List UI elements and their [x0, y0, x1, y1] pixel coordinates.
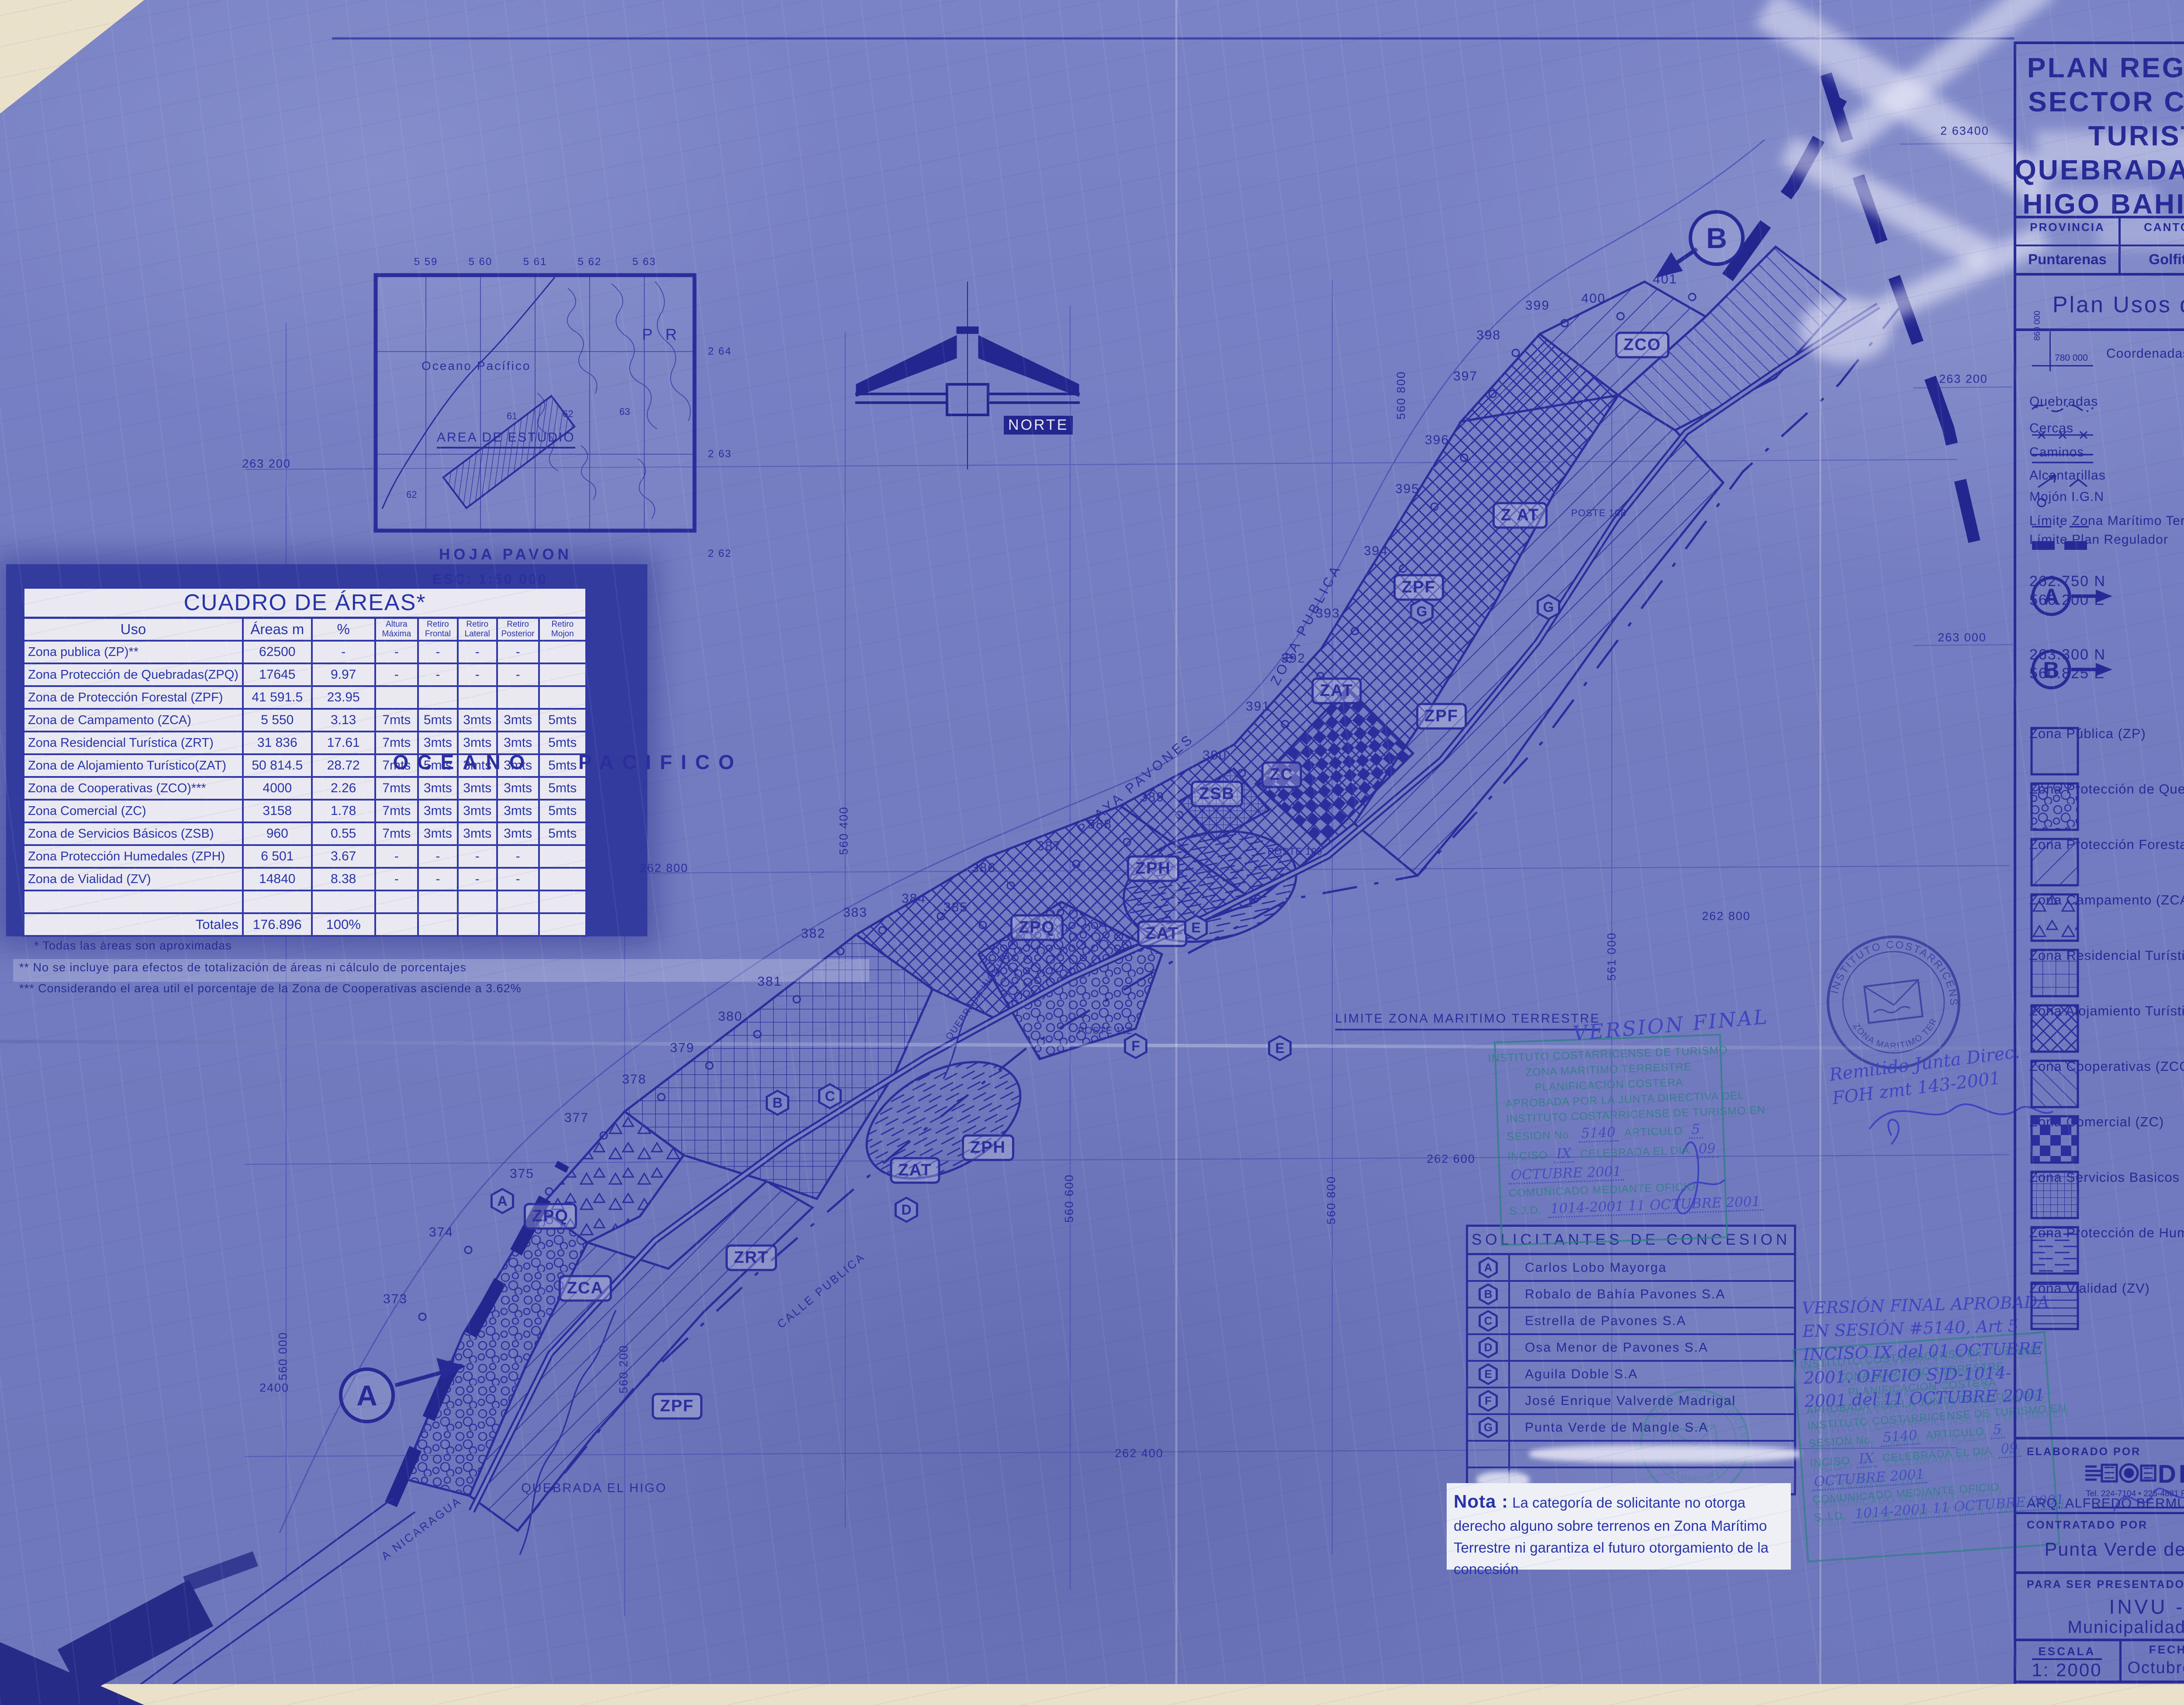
map-label-zat: ZAT: [1311, 678, 1362, 704]
admin-value: Puntarenas: [2016, 251, 2119, 268]
legend-zone-row: Zona Cooperativas (ZCO): [2029, 1059, 2184, 1074]
legend-symbol-row: Cercas: [2029, 421, 2184, 436]
legend-zone-row: Zona Residencial Turística (ZRT): [2029, 948, 2184, 963]
areas-uso: Zona de Cooperativas (ZCO)***: [24, 777, 243, 800]
approval-stamp: INSTITUTO COSTARRICENSE DE TURISMOZONA M…: [1494, 1034, 1728, 1246]
areas-cell: [497, 686, 539, 709]
stamp-segment: IX: [1856, 1450, 1877, 1468]
solicitante-name: Osa Menor de Pavones S.A: [1510, 1335, 1794, 1360]
mojon-label: 384: [902, 891, 926, 906]
solicitante-letter: D: [1479, 1337, 1498, 1359]
solicitante-letter: B: [1479, 1284, 1498, 1305]
map-label-zpq: ZPQ: [524, 1203, 577, 1230]
areas-cell: 5mts: [539, 709, 586, 732]
areas-cell: -: [497, 868, 539, 890]
map-label-263-200: 263 200: [242, 457, 291, 471]
areas-totals-label: Totales: [24, 913, 243, 936]
sheet-title-line: SECTOR COSTERO: [2015, 86, 2184, 118]
areas-cell: -: [418, 845, 458, 868]
inset-pr-label: P R: [642, 325, 681, 344]
mojon-label: 389: [1140, 790, 1165, 805]
stamp-segment: SESION No.: [1507, 1129, 1572, 1143]
zone-swatch-zco: [2029, 1059, 2080, 1109]
areas-cell: 14840: [243, 868, 312, 890]
stamp-segment: 09: [1997, 1440, 2021, 1458]
inset-tick: 5 63: [632, 256, 657, 268]
zone-swatch-zca: [2029, 892, 2080, 943]
stamp-segment: OCTUBRE 2001: [1508, 1163, 1624, 1184]
mojon-label: 380: [718, 1009, 743, 1024]
stamp-segment: INCISO: [1507, 1149, 1548, 1163]
stamp-segment: 5140: [1578, 1124, 1618, 1142]
stamp-segment: CELEBRADA EL DIA: [1580, 1144, 1690, 1161]
areas-cell: [539, 868, 586, 890]
areas-cell: -: [458, 868, 497, 890]
areas-uso: Zona de Servicios Básicos (ZSB): [24, 822, 243, 845]
solicitante-name: Punta Verde de Mangle S.A: [1510, 1415, 1794, 1440]
map-label-zsb: ZSB: [1191, 781, 1243, 808]
architect-name: ARQ. ALFREDO BERMUDEZ: [2027, 1495, 2184, 1511]
map-label-560-600: 560 600: [1063, 1174, 1076, 1223]
mojon-label: 386: [971, 861, 996, 876]
lambert-icon: 860 000 780 000: [2029, 328, 2095, 380]
solicitante-letter-inner: C: [1481, 1312, 1496, 1330]
mojon-label: 383: [843, 905, 867, 920]
legend-zone-row: Zona Comercial (ZC): [2029, 1114, 2164, 1130]
stamp-segment: 5: [1689, 1122, 1703, 1139]
areas-cell: 3mts: [458, 777, 497, 800]
presentado-muni: Municipalidad de Golfito: [2015, 1618, 2184, 1637]
areas-uso: Zona Residencial Turística (ZRT): [24, 732, 243, 754]
mojon-circle: [546, 1188, 553, 1195]
zone-swatch-zpq: [2029, 781, 2080, 832]
areas-cell: 4000: [243, 777, 312, 800]
nota-label: Nota :: [1454, 1491, 1508, 1512]
areas-cell: 7mts: [375, 800, 418, 822]
legend-symbol-row: Quebradas: [2029, 394, 2184, 410]
legend-zone-row: Zona Pública (ZP): [2029, 726, 2146, 742]
map-label-zpq: ZPQ: [1010, 915, 1064, 941]
solicitante-row: [1468, 1442, 1794, 1468]
stamp-segment: ZONA MARITIMO TERRESTRE: [1525, 1060, 1692, 1079]
map-label-z-at: Z AT: [1493, 502, 1548, 529]
map-label-zat: ZAT: [1137, 921, 1187, 947]
caminos-icon: [2029, 445, 2095, 471]
parcel-letter-inner: G: [1412, 601, 1431, 622]
inset-study-label: AREA DE ESTUDIO: [437, 430, 575, 449]
areas-cell: 9.97: [312, 663, 375, 686]
mojon-label: 377: [564, 1111, 589, 1125]
areas-cell: 41 591.5: [243, 686, 312, 709]
mojon-label: 396: [1425, 433, 1449, 448]
areas-header: RetiroMojon: [539, 618, 586, 641]
stamp-segment: CELEBRADA EL DIA: [1882, 1445, 1993, 1465]
map-label-zca: ZCA: [559, 1275, 612, 1302]
solicitante-letter-cell: B: [1468, 1282, 1510, 1307]
legend-zone-row: Zona Vialidad (ZV): [2029, 1280, 2150, 1296]
mojon-label: 401: [1653, 272, 1677, 287]
areas-header: RetiroPosterior: [497, 618, 539, 641]
north-label: NORTE: [1004, 416, 1073, 435]
solicitante-letter-cell: F: [1468, 1388, 1510, 1413]
areas-cell: [539, 845, 586, 868]
parcel-letter-inner: F: [1126, 1035, 1145, 1057]
elaborado-label: ELABORADO POR: [2027, 1446, 2141, 1458]
areas-uso: Zona de Protección Forestal (ZPF): [24, 686, 243, 709]
contratado-label: CONTRATADO POR: [2027, 1519, 2148, 1532]
solicitante-letter: E: [1479, 1363, 1498, 1385]
map-label-zph: ZPH: [962, 1135, 1014, 1161]
map-label-zrt: ZRT: [726, 1245, 777, 1271]
areas-cell: 1.78: [312, 800, 375, 822]
firm-name: DEPPAT: [2158, 1460, 2184, 1489]
solicitante-row: FJosé Enrique Valverde Madrigal: [1468, 1388, 1794, 1415]
solicitante-letter-inner: G: [1481, 1419, 1496, 1436]
legend-zone-row: Zona Protección de Humedales (ZPH): [2029, 1225, 2184, 1241]
inset-tick: 2 64: [708, 345, 732, 358]
areas-cell: -: [418, 641, 458, 663]
mojon-circle: [419, 1313, 426, 1320]
parcel-letter-inner: C: [820, 1085, 840, 1107]
legend-zone-row: Zona Protección Forestal (ZPF): [2029, 837, 2184, 852]
map-label-263-000: 263 000: [1938, 631, 1987, 645]
areas-header: RetiroFrontal: [418, 618, 458, 641]
mojon-label: 390: [1203, 748, 1227, 763]
solicitante-letter-cell: G: [1468, 1415, 1510, 1440]
areas-uso: Zona Protección de Quebradas(ZPQ): [24, 663, 243, 686]
mojon-label: 400: [1581, 291, 1606, 306]
areas-cell: 3mts: [497, 709, 539, 732]
svg-text:A: A: [2043, 584, 2060, 610]
areas-cell: 7mts: [375, 709, 418, 732]
map-label-zc: ZC: [1261, 762, 1302, 788]
escala-value: 1: 2000: [2015, 1660, 2119, 1681]
inset-tick: 5 60: [469, 256, 493, 268]
solicitante-row: GPunta Verde de Mangle S.A: [1468, 1415, 1794, 1442]
escala-label: ESCALA: [2032, 1645, 2102, 1660]
areas-cell: -: [418, 663, 458, 686]
areas-uso: Zona Comercial (ZC): [24, 800, 243, 822]
areas-total-pct: 100%: [312, 913, 375, 936]
solicitante-row: DOsa Menor de Pavones S.A: [1468, 1335, 1794, 1362]
areas-cell: -: [375, 663, 418, 686]
solicitante-letter-inner: D: [1481, 1339, 1496, 1356]
inset-num: 61: [507, 411, 517, 422]
map-label-poste-112: POSTE 112: [1078, 1025, 1133, 1036]
areas-cell: 3mts: [497, 777, 539, 800]
areas-uso: Zona de Vialidad (ZV): [24, 868, 243, 890]
map-label-zco: ZCO: [1615, 332, 1669, 359]
areas-cell: -: [458, 641, 497, 663]
areas-cell: -: [497, 641, 539, 663]
areas-cell: [458, 686, 497, 709]
areas-uso: Zona de Campamento (ZCA): [24, 709, 243, 732]
sheet-title-line: PLAN REGULADOR: [2015, 52, 2184, 84]
lambert-v: 860 000: [2033, 311, 2042, 341]
areas-cell: 5 550: [243, 709, 312, 732]
solicitante-letter-inner: E: [1481, 1366, 1496, 1383]
stamp-segment: 5140: [1880, 1427, 1920, 1447]
solicitante-letter-inner: A: [1481, 1259, 1496, 1277]
areas-cell: -: [497, 845, 539, 868]
areas-cell: 17645: [243, 663, 312, 686]
areas-cell: 3mts: [418, 777, 458, 800]
areas-cell: [418, 686, 458, 709]
north-arrow: [855, 282, 1080, 469]
map-label-zph: ZPH: [1127, 856, 1179, 882]
parcel-letter-inner: B: [768, 1092, 787, 1114]
areas-header: RetiroLateral: [458, 618, 497, 641]
areas-cell: 5mts: [539, 822, 586, 845]
map-label-zpf: ZPF: [652, 1393, 702, 1420]
areas-cell: [375, 686, 418, 709]
mojon-label: 399: [1525, 298, 1550, 313]
solicitante-name: Estrella de Pavones S.A: [1510, 1308, 1794, 1333]
zone-swatch-zc: [2029, 1114, 2080, 1165]
areas-uso: Zona de Alojamiento Turístico(ZAT): [24, 754, 243, 777]
areas-cell: 3mts: [497, 822, 539, 845]
map-label-2-63400: 2 63400: [1940, 124, 1989, 138]
legend-symbol-label: Coordenadas Lambert: [2106, 346, 2184, 362]
areas-cell: 3mts: [418, 800, 458, 822]
solicitante-row: ACarlos Lobo Mayorga: [1468, 1255, 1794, 1282]
stamp-segment: 09: [1696, 1140, 1719, 1158]
lpr-icon: [2029, 532, 2095, 559]
solicitante-row: BRobalo de Bahía Pavones S.A: [1468, 1282, 1794, 1308]
areas-cell: [539, 641, 586, 663]
inset-tick: 5 61: [523, 256, 547, 268]
mojon-label: 387: [1037, 839, 1061, 854]
solicitante-name: José Enrique Valverde Madrigal: [1510, 1388, 1794, 1413]
map-label-262-800: 262 800: [1702, 910, 1751, 923]
solicitante-letter: C: [1479, 1310, 1498, 1332]
parcel-letter-inner: G: [1539, 596, 1558, 618]
legend-symbol-row: Alcantarillas: [2029, 468, 2184, 483]
mojon-circle: [1689, 293, 1696, 300]
areas-cell: -: [375, 868, 418, 890]
areas-cell: [539, 663, 586, 686]
legend-symbol-row: Caminos: [2029, 445, 2184, 460]
areas-cell: -: [497, 663, 539, 686]
map-point-B: B: [1689, 210, 1745, 266]
areas-cell: 6 501: [243, 845, 312, 868]
mojon-label: 392: [1281, 651, 1306, 666]
solicitante-letter-cell: A: [1468, 1255, 1510, 1280]
solicitante-letter: F: [1479, 1390, 1498, 1412]
svg-text:B: B: [2043, 658, 2060, 683]
zone-swatch-zv: [2029, 1280, 2080, 1331]
areas-cell: 3mts: [458, 709, 497, 732]
solicitante-name: Aguila Doble S.A: [1510, 1362, 1794, 1387]
areas-cell: -: [312, 641, 375, 663]
map-label-quebrada-el-higo: QUEBRADA EL HIGO: [521, 1481, 667, 1496]
areas-uso: Zona publica (ZP)**: [24, 641, 243, 663]
parcel-letter-inner: E: [1270, 1037, 1289, 1059]
stamp-segment: ARTICULO: [1925, 1425, 1985, 1442]
mojon-label: 398: [1476, 328, 1501, 343]
presentado-label: PARA SER PRESENTADO A: [2027, 1578, 2184, 1591]
solicitante-row: EAguila Doble S.A: [1468, 1362, 1794, 1388]
stamp-segment: SESION No.: [1808, 1433, 1875, 1450]
mojon-label: 385: [943, 900, 968, 915]
point-B-icon: B: [2029, 645, 2117, 694]
map-label-2400: 2400: [259, 1381, 289, 1395]
areas-cell: 3.13: [312, 709, 375, 732]
stamp-segment: 5: [1990, 1421, 2005, 1439]
legend-symbol-row: Mojón I.G.N: [2029, 490, 2184, 505]
map-label-560-400: 560 400: [837, 806, 851, 855]
areas-cell: 5mts: [539, 800, 586, 822]
map-label-zpf: ZPF: [1393, 574, 1444, 601]
areas-cell: [539, 686, 586, 709]
presentado-invu: INVU - ICT: [2015, 1595, 2184, 1619]
map-label-zat: ZAT: [890, 1157, 940, 1184]
stamp-segment: S.J.D.: [1814, 1509, 1847, 1524]
stamp-segment: PLANIFICACION COSTERA: [1534, 1076, 1683, 1094]
areas-total-area: 176.896: [243, 913, 312, 936]
mojon-label: 373: [383, 1292, 408, 1307]
map-point-A: A: [339, 1367, 395, 1423]
mojon-circle: [465, 1246, 472, 1253]
mojon-label: 391: [1246, 699, 1270, 714]
parcel-letter-inner: D: [897, 1199, 916, 1221]
solicitante-letter-cell: [1468, 1442, 1510, 1467]
areas-cell: 50 814.5: [243, 754, 312, 777]
mojon-label: 374: [429, 1225, 453, 1240]
mojon-circle: [1512, 349, 1519, 356]
areas-cell: 8.38: [312, 868, 375, 890]
sheet-title-line: HIGO BAHIA PAVON: [2015, 188, 2184, 220]
areas-cell: 3mts: [458, 822, 497, 845]
deppat-logo: [2084, 1459, 2158, 1489]
areas-cell: 23.95: [312, 686, 375, 709]
map-label-263-200: 263 200: [1939, 373, 1988, 386]
inset-num: 63: [619, 406, 630, 418]
mojon-label: 375: [510, 1167, 534, 1181]
inset-map: [376, 275, 695, 531]
stamp-segment: ARTICULO: [1624, 1125, 1683, 1139]
fecha-label: FECHA: [2122, 1643, 2184, 1657]
solicitante-letter-inner: F: [1481, 1392, 1496, 1410]
areas-cell: 28.72: [312, 754, 375, 777]
mojon-label: 381: [757, 974, 782, 989]
legend-point-row: B 263.300 N560.825 E: [2029, 645, 2106, 683]
areas-title: CUADRO DE ÁREAS*: [24, 588, 586, 618]
mojon-label: 394: [1364, 544, 1388, 559]
legend-point-row: A 262.750 N560.200 E: [2029, 572, 2106, 609]
quebradas-icon: [2029, 394, 2095, 421]
blueprint-sheet: INSTITUTO COSTARRICENSE DE TURISMO ZONA …: [0, 0, 2184, 1705]
areas-cell: 3158: [243, 800, 312, 822]
stamp-segment: IX: [1554, 1146, 1575, 1163]
point-A-icon: A: [2029, 572, 2117, 620]
zone-swatch-zat: [2029, 1003, 2080, 1054]
mojon-label: 393: [1316, 606, 1340, 621]
sheet-title-line: QUEBRADAS MANGLE: [2015, 154, 2184, 186]
areas-cell: 960: [243, 822, 312, 845]
legend-zone-row: Zona Campamento (ZCA): [2029, 892, 2184, 908]
map-label-poste-108: POSTE 108: [1571, 507, 1626, 519]
map-label-262-800: 262 800: [639, 862, 688, 875]
inset-tick: 5 59: [414, 256, 438, 268]
areas-cell: 5mts: [539, 777, 586, 800]
legend-zone-row: Zona Servicios Basicos (ZSB): [2029, 1170, 2184, 1185]
stamp-line: S.J.D.1014-2001 11 OCTUBRE 2001: [1509, 1195, 1717, 1220]
inset-tick: 2 62: [708, 548, 732, 560]
zone-swatch-zsb: [2029, 1170, 2080, 1220]
map-label-560-800: 560 800: [1325, 1176, 1338, 1225]
mojon-label: 379: [670, 1041, 695, 1056]
inset-tick: 2 63: [708, 448, 732, 460]
areas-cell: -: [458, 663, 497, 686]
areas-cell: 3mts: [497, 800, 539, 822]
map-label-560-000: 560 000: [276, 1332, 290, 1381]
admin-header: PROVINCIA: [2016, 221, 2119, 234]
areas-cell: 2.26: [312, 777, 375, 800]
erasure-mark: [1529, 1445, 1800, 1463]
areas-cell: -: [418, 868, 458, 890]
map-label-560-800: 560 800: [1395, 371, 1408, 420]
fecha-value: Octubre 97: [2122, 1659, 2184, 1677]
legend-symbol-row: Límite Zona Marítimo Terrestre: [2029, 514, 2184, 529]
areas-cell: 31 836: [243, 732, 312, 754]
areas-cell: -: [458, 845, 497, 868]
map-label-262-600: 262 600: [1427, 1153, 1476, 1166]
solicitante-letter-inner: B: [1481, 1286, 1496, 1303]
inset-num: 62: [406, 489, 417, 500]
admin-value: Golfito: [2121, 251, 2184, 268]
solicitante-letter: A: [1479, 1257, 1498, 1279]
mojon-label: 382: [801, 926, 826, 941]
contratado-value: Punta Verde de Mangle S.A: [2015, 1539, 2184, 1560]
inset-scale: ESC: 1:50 000: [432, 571, 548, 587]
areas-header: Uso: [24, 618, 243, 641]
areas-note: * Todas las áreas son aproximadas: [34, 939, 232, 953]
legend-zone-row: Zona Protección de Quebradas (ZPQ): [2029, 781, 2184, 797]
solicitante-row: CEstrella de Pavones S.A: [1468, 1308, 1794, 1335]
sheet-title-line: TURISTICO: [2015, 120, 2184, 152]
map-label-poste-109: POSTE 109: [1268, 846, 1323, 857]
lambert-h: 780 000: [2055, 353, 2088, 363]
solicitantes-table: SOLICITANTES DE CONCESION ACarlos Lobo M…: [1466, 1225, 1796, 1495]
areas-cell: 3mts: [418, 822, 458, 845]
inset-num: 62: [563, 408, 573, 420]
mojon-icon: [2029, 490, 2095, 516]
inset-tick: 5 62: [578, 256, 602, 268]
solicitante-letter-cell: D: [1468, 1335, 1510, 1360]
map-label-561-000: 561 000: [1605, 932, 1619, 981]
legend-symbol-row: 860 000 780 000 Coordenadas Lambert: [2029, 328, 2184, 380]
stamp-segment: S.J.D.: [1509, 1204, 1542, 1218]
areas-cell: 17.61: [312, 732, 375, 754]
mojon-label: 388: [1088, 817, 1112, 832]
areas-note: *** Considerando el area util el porcent…: [19, 982, 522, 995]
areas-header: Áreas m: [243, 618, 312, 641]
zone-swatch-zrt: [2029, 948, 2080, 998]
solicitante-letter-cell: C: [1468, 1308, 1510, 1333]
areas-cell: 7mts: [375, 822, 418, 845]
parcel-letter-inner: E: [1186, 917, 1206, 939]
cercas-icon: [2029, 421, 2095, 447]
areas-cell: 3.67: [312, 845, 375, 868]
areas-cell: 5mts: [418, 709, 458, 732]
solicitante-name: Carlos Lobo Mayorga: [1510, 1255, 1794, 1280]
areas-cell: 0.55: [312, 822, 375, 845]
map-label-oceano-pacifico: OCEANO PACIFICO: [393, 750, 743, 774]
paper-edge: [0, 1684, 2184, 1705]
areas-cell: -: [375, 641, 418, 663]
parcel-letter-inner: A: [493, 1190, 512, 1212]
